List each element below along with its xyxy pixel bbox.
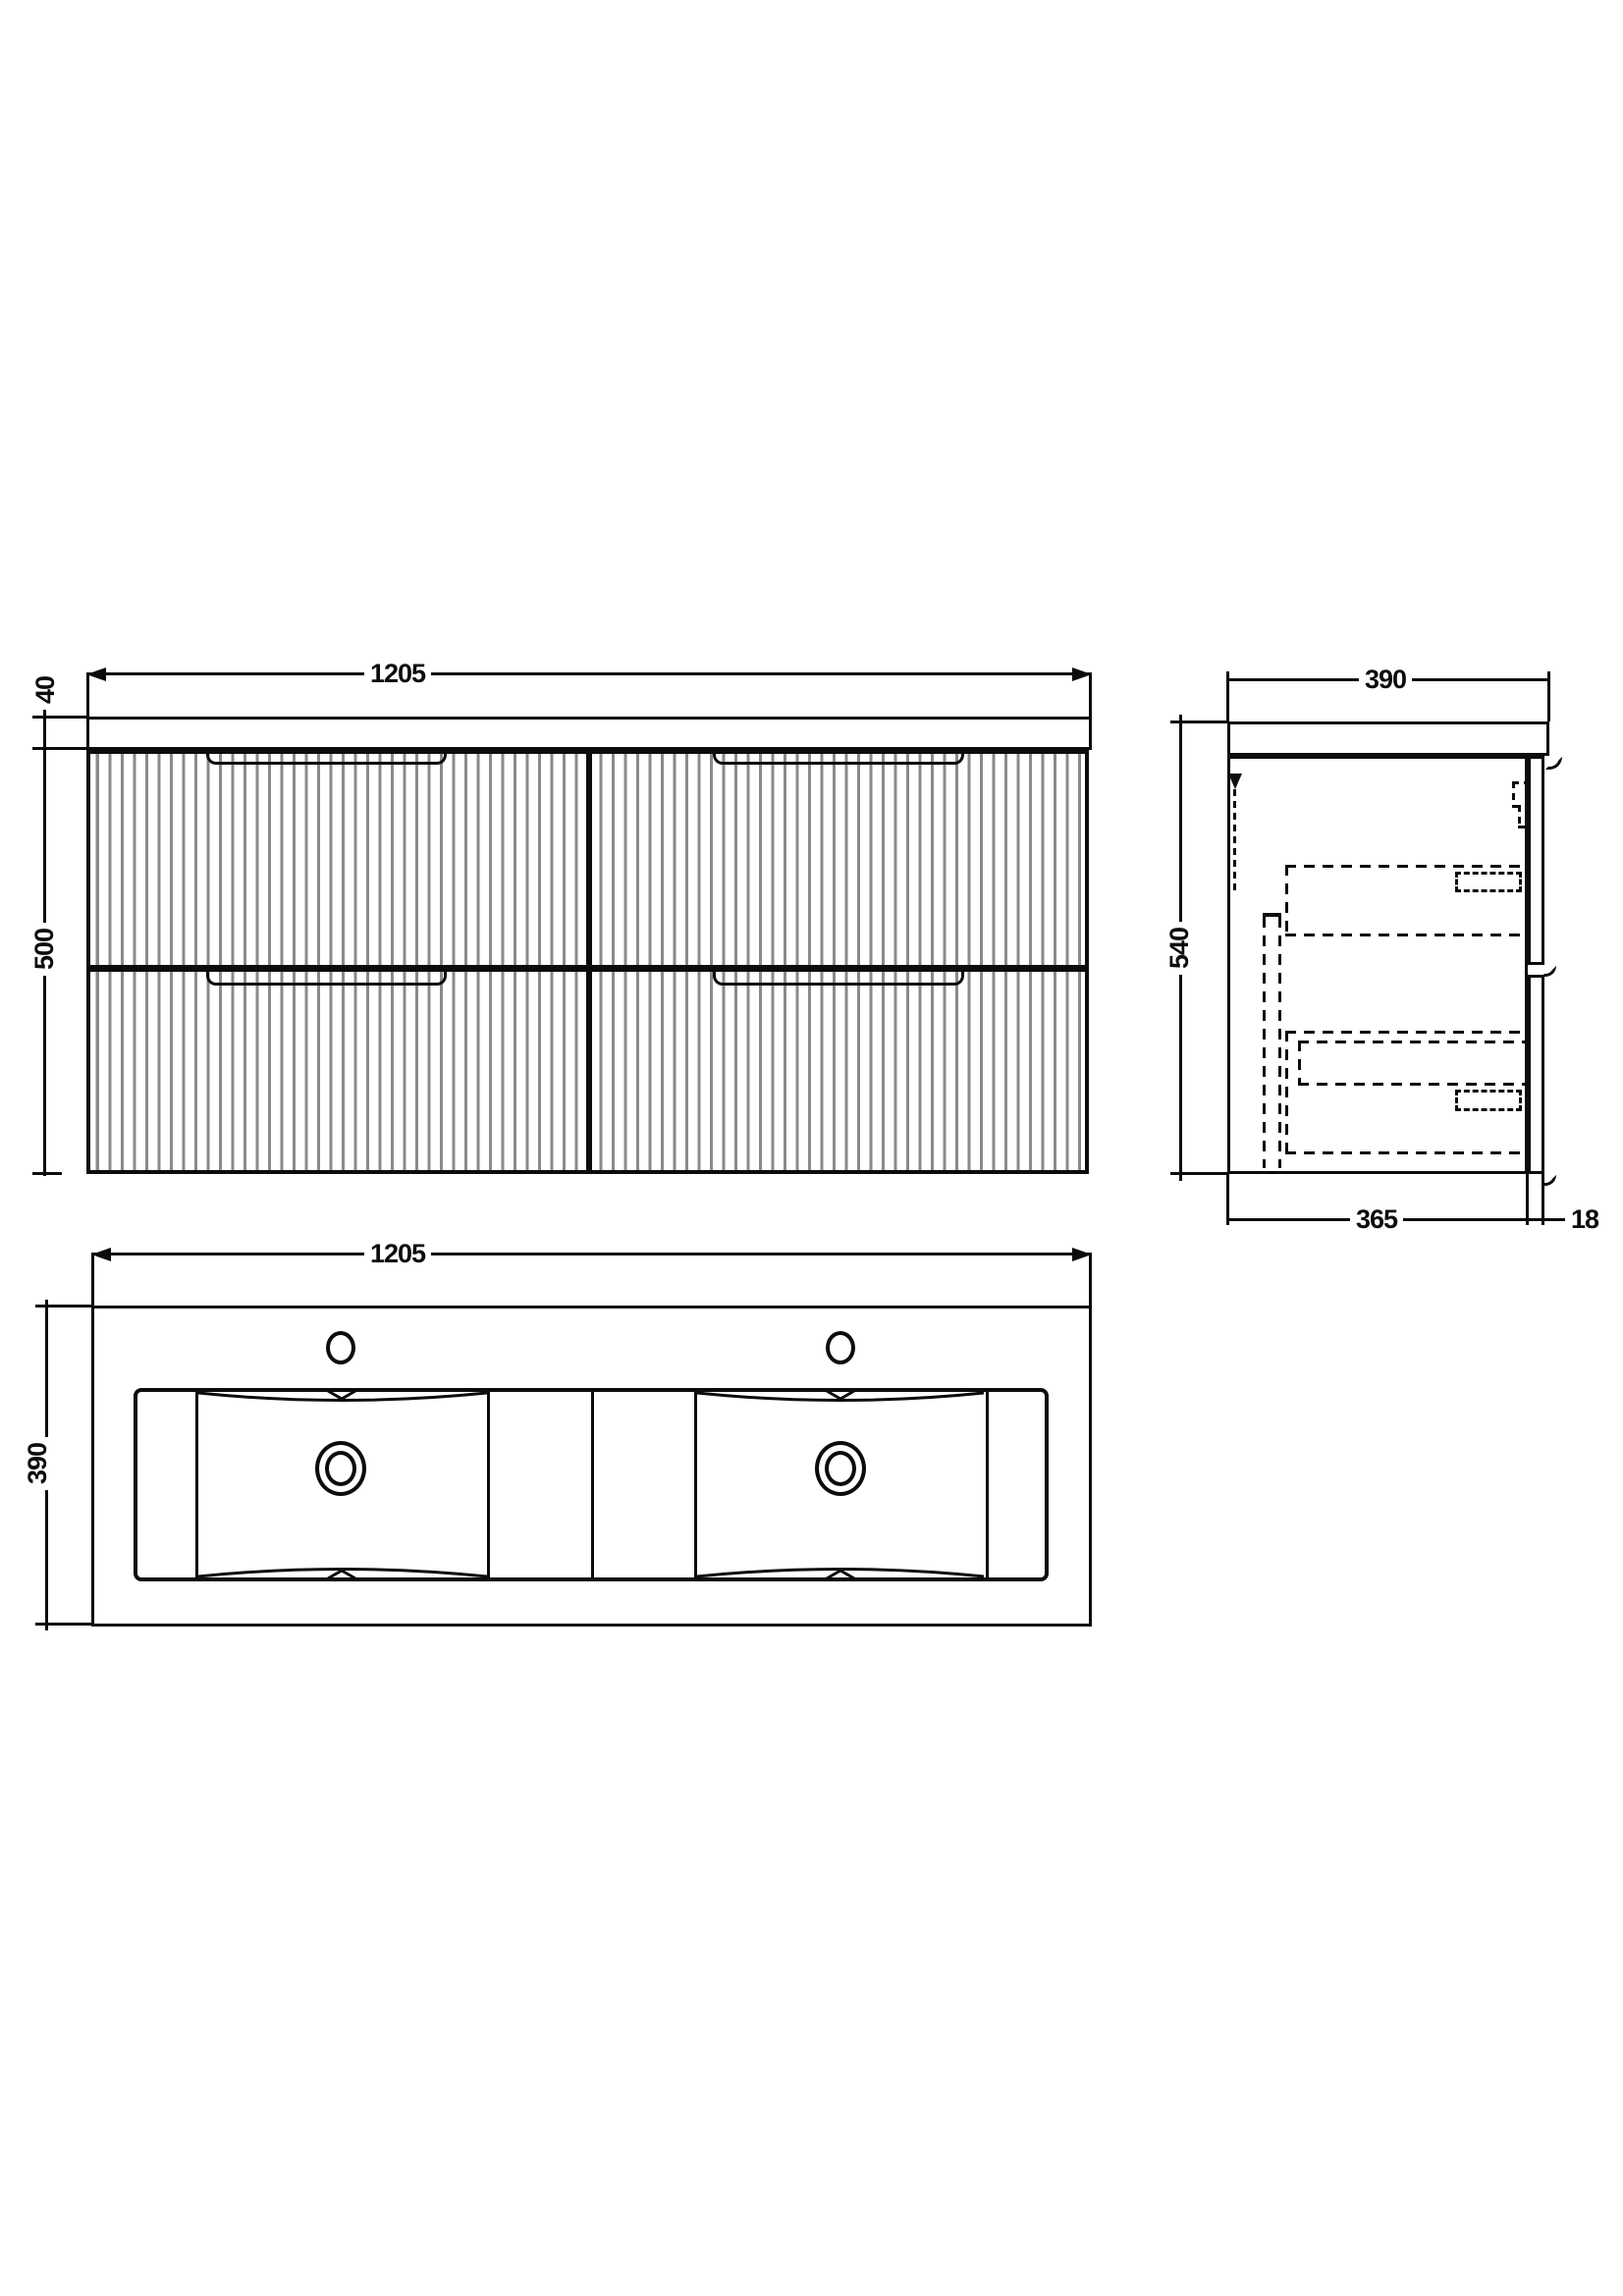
lower-drawer-dashed-back [1285, 1031, 1288, 1154]
wall-bracket-dashed-line [1233, 789, 1236, 895]
cabinet-center-divider [586, 748, 592, 1174]
tap-hole [326, 1331, 355, 1364]
drawer-handle [206, 751, 447, 765]
lower-drawer-handle-recess [1455, 1090, 1522, 1111]
waste-pipe-dashed-line [1263, 917, 1266, 1168]
drawer-handle [713, 751, 964, 765]
plan-width-label: 1205 [364, 1240, 431, 1269]
side-cabinet-body [1227, 756, 1528, 1174]
dimension-tick [35, 1305, 91, 1308]
countertop-edge-curl [1545, 757, 1562, 770]
dimension-arrow-left-icon [86, 667, 106, 681]
side-body-depth-label: 365 [1350, 1205, 1403, 1235]
plan-depth-label: 390 [24, 1437, 53, 1490]
waste-pipe-dashed-line [1278, 917, 1281, 1168]
drawer-front-gap-curl [1542, 966, 1556, 977]
upper-drawer-dashed-top [1285, 865, 1527, 868]
front-countertop [86, 717, 1092, 750]
wall-bracket-icon [1228, 774, 1242, 789]
bracket-step-dash [1512, 781, 1515, 808]
lower-drawer-dashed-inner-bottom [1298, 1083, 1527, 1086]
cabinet-height-label: 500 [30, 923, 60, 976]
countertop-thickness-label: 40 [31, 670, 61, 710]
plan-width-dimension-line [91, 1253, 1092, 1255]
upper-drawer-dashed-bottom [1285, 934, 1527, 936]
side-drawer-front-upper [1528, 756, 1544, 965]
dimension-tick [32, 1172, 62, 1175]
lower-drawer-dashed-inner-top [1298, 1041, 1527, 1043]
lower-drawer-dashed-inner-back [1298, 1041, 1301, 1086]
waste-drain-inner [325, 1451, 356, 1486]
drawer-handle [713, 972, 964, 986]
dimension-tick [32, 716, 86, 719]
front-width-dimension-line [86, 672, 1092, 675]
dimension-arrow-right-icon [1072, 667, 1092, 681]
vanity-technical-drawing: 1205 40 500 390 540 [0, 0, 1623, 2296]
side-countertop [1227, 721, 1549, 756]
side-height-label: 540 [1165, 922, 1195, 975]
lower-drawer-dashed-bottom [1285, 1151, 1527, 1154]
dimension-tick [1170, 1172, 1227, 1175]
dimension-tick [32, 747, 86, 750]
extension-line [1547, 671, 1550, 721]
drawer-divider [86, 965, 1089, 972]
extension-line [1226, 671, 1229, 721]
dimension-tick [35, 1623, 91, 1626]
front-width-dimension-label: 1205 [364, 660, 431, 689]
dimension-arrow-left-icon [91, 1248, 111, 1261]
dimension-arrow-right-icon [1072, 1248, 1092, 1261]
lower-drawer-dashed-top [1285, 1031, 1527, 1034]
tap-hole [826, 1331, 855, 1364]
basin-bowl-curves [134, 1388, 1049, 1581]
drawer-front-thickness-label: 18 [1565, 1205, 1604, 1235]
drawer-handle [206, 972, 447, 986]
side-drawer-front-lower [1528, 975, 1544, 1174]
bracket-step-dash [1518, 826, 1527, 828]
upper-drawer-handle-recess [1455, 872, 1522, 892]
waste-drain-inner [825, 1451, 856, 1486]
dimension-tick [1170, 721, 1227, 723]
upper-drawer-dashed-back [1285, 865, 1288, 936]
side-depth-label: 390 [1359, 666, 1412, 695]
